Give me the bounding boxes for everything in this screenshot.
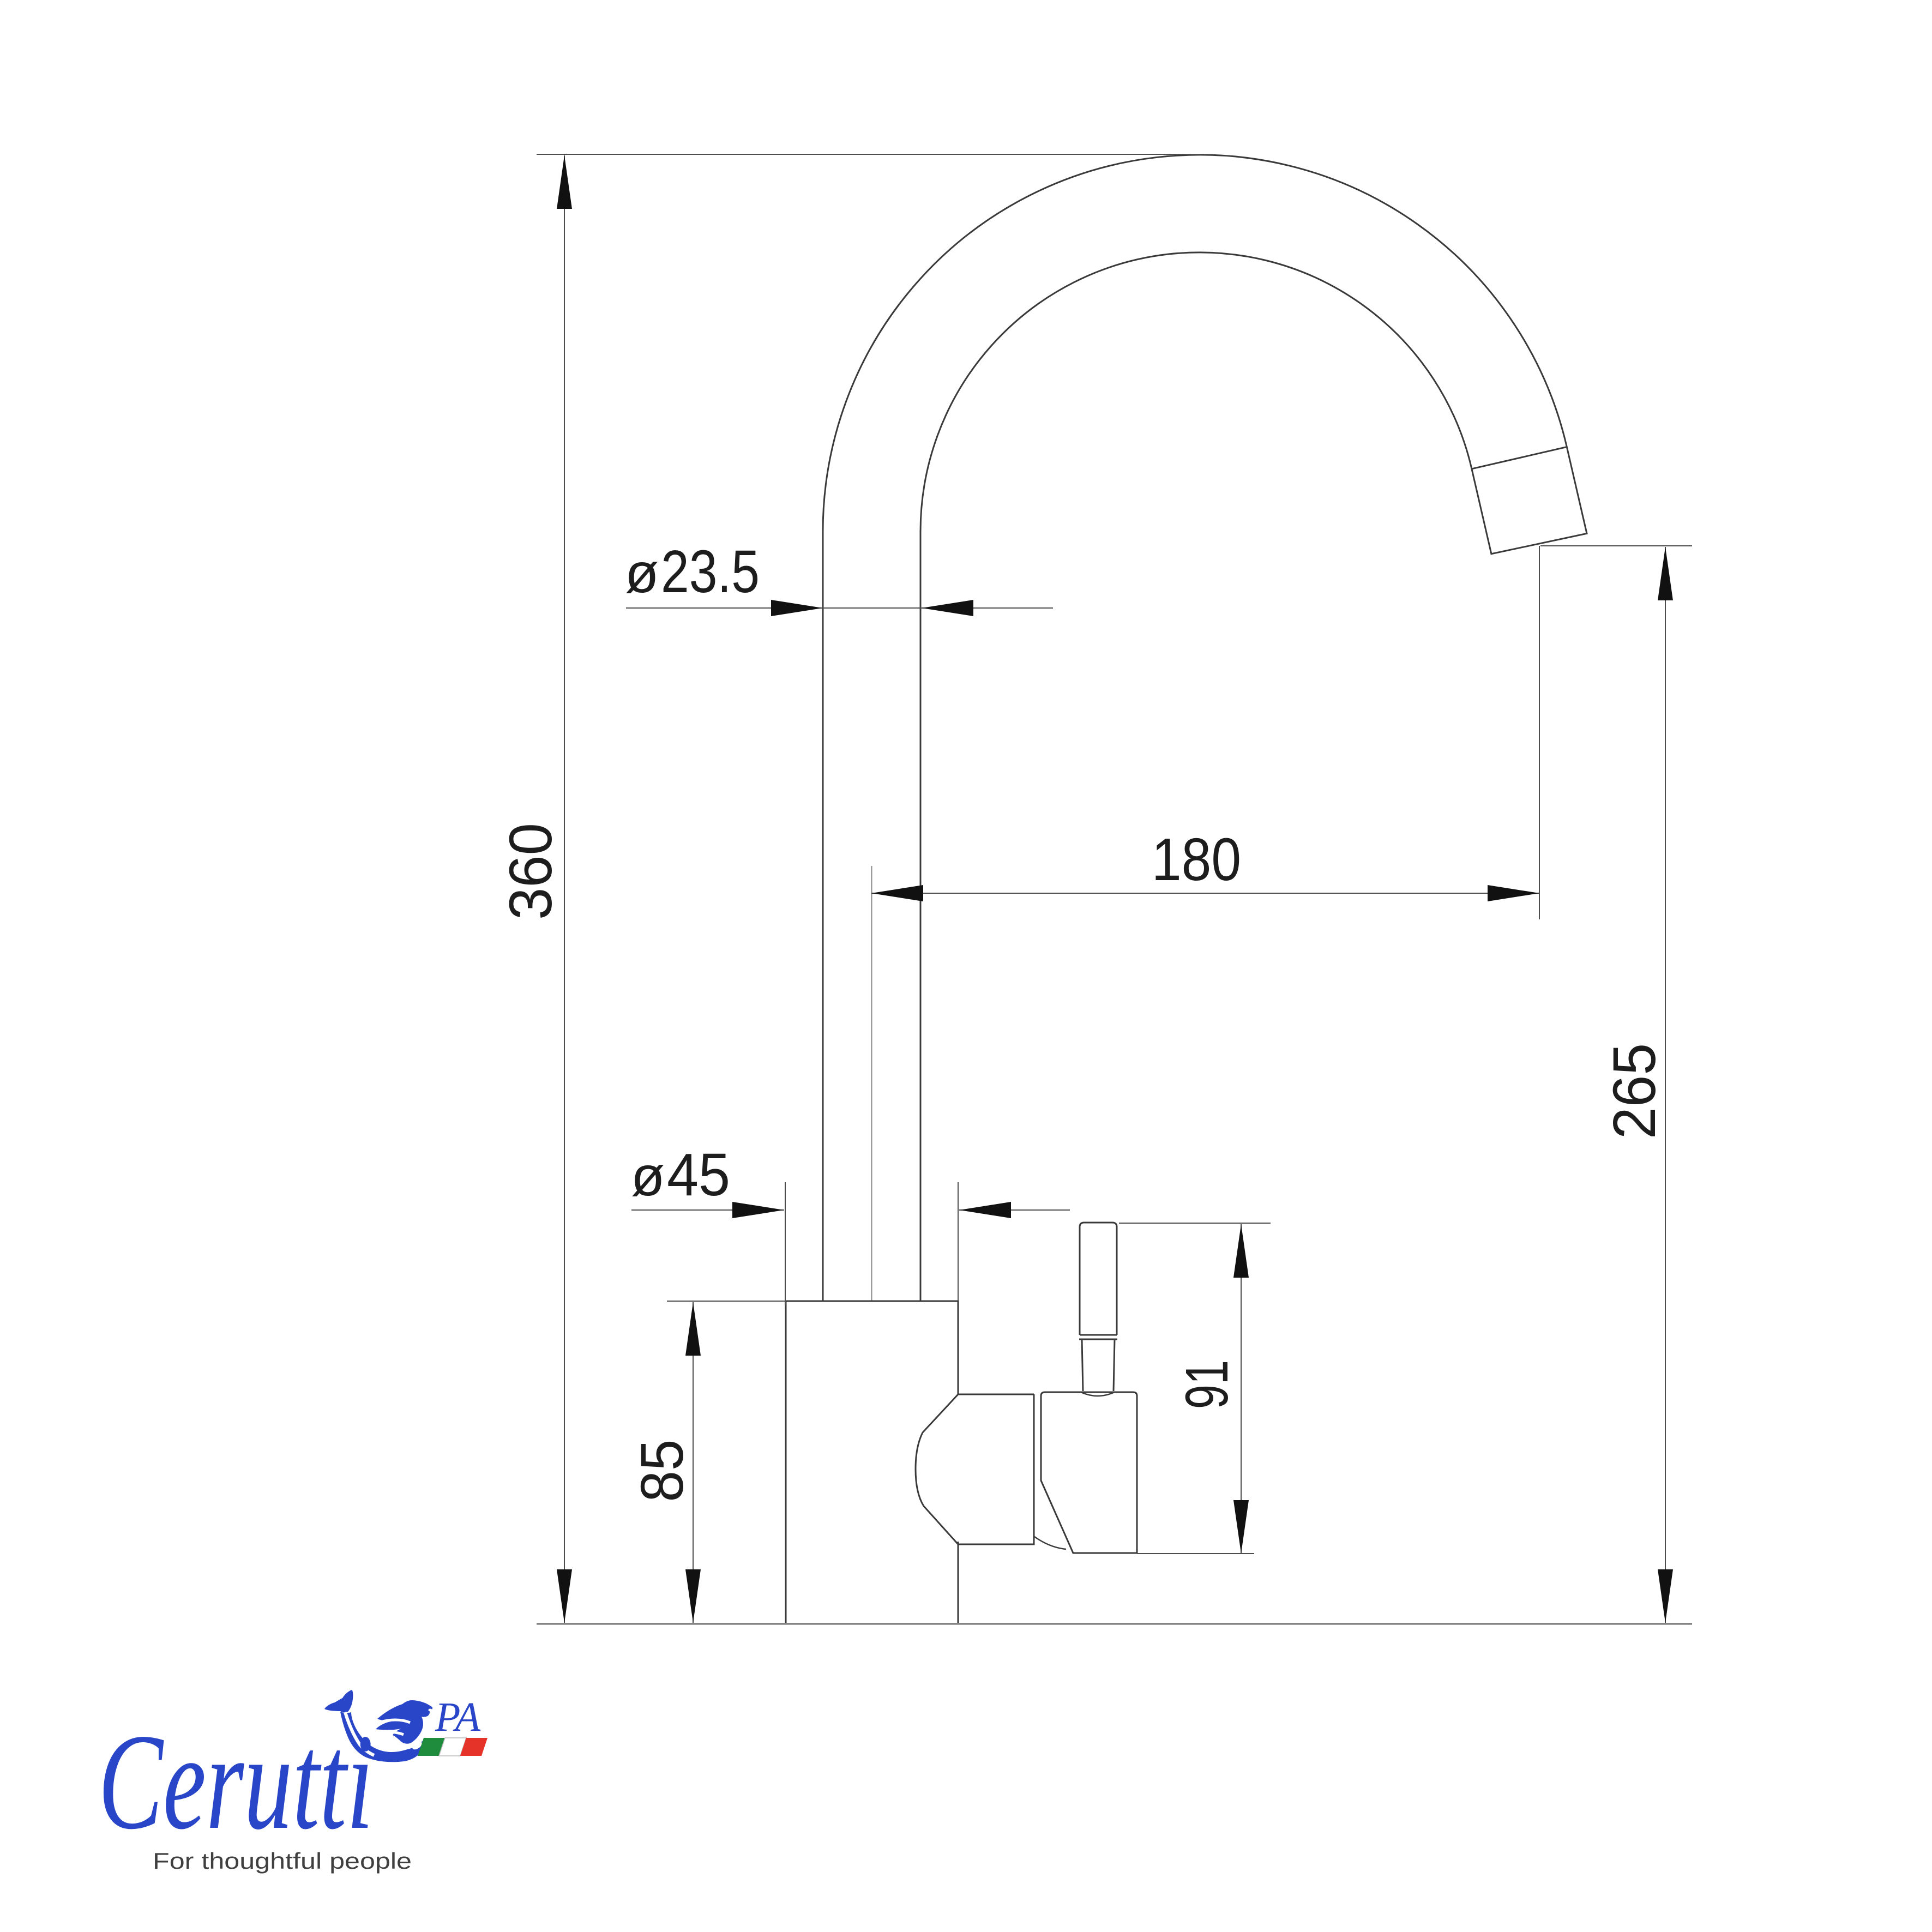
svg-text:265: 265 (1601, 1043, 1668, 1139)
svg-text:91: 91 (1173, 1360, 1241, 1409)
svg-text:85: 85 (629, 1440, 696, 1502)
svg-text:ø23.5: ø23.5 (625, 538, 760, 605)
svg-text:ø45: ø45 (631, 1141, 730, 1208)
svg-text:180: 180 (1152, 826, 1241, 893)
svg-text:Cerutti: Cerutti (98, 1705, 374, 1858)
svg-text:For thoughtful people: For thoughtful people (153, 1848, 412, 1874)
svg-text:PA: PA (435, 1694, 481, 1740)
svg-text:360: 360 (497, 823, 564, 920)
